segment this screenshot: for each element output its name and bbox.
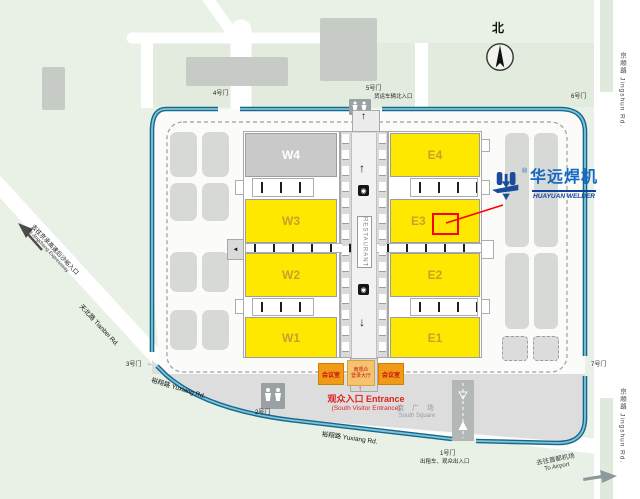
- corridor-stairs: [379, 134, 386, 356]
- gate-5-label: 5号门: [366, 86, 381, 92]
- door-strip: [410, 298, 478, 316]
- hall-w2: W2: [245, 253, 337, 297]
- road-median-bottom: [600, 398, 613, 499]
- hall-w4: W4: [245, 133, 337, 177]
- building-tab: [235, 180, 244, 195]
- connector-arrow-icon: ↑: [361, 112, 366, 122]
- restaurant: RESTAURANT: [357, 216, 372, 268]
- corridor-arrow-down-icon: ↓: [359, 316, 365, 328]
- gate-6-label: 6号门: [571, 94, 586, 100]
- hall-e2: E2: [390, 253, 480, 297]
- building-tab: [235, 299, 244, 314]
- facility-icon: ◉: [358, 185, 369, 196]
- welder-logo-icon: [492, 172, 524, 202]
- gate-1-sublabel: 出租车、观众出入口: [420, 460, 470, 466]
- parking-lot: [170, 252, 197, 292]
- entrance-arrow-icon: ↑: [358, 385, 362, 393]
- gate-7-label: 7号门: [591, 362, 606, 368]
- building-tab: [481, 180, 490, 195]
- hall-e4: E4: [390, 133, 480, 177]
- road-median-top: [600, 0, 613, 92]
- strip-west-road: [141, 33, 153, 108]
- huayuan-welder-logo: ® 华远焊机 HUAYUAN WELDER: [492, 168, 604, 204]
- west-gate-lobby: ◄: [227, 239, 244, 260]
- road-jingshun-top: 京顺路 Jingshun Rd.: [618, 52, 625, 182]
- conference-room-right: 会议室: [378, 363, 404, 385]
- parking-lot: [202, 252, 229, 292]
- parking-lot: [170, 310, 197, 350]
- exhibition-center-map: W4 W3 W2 W1 E4 E3 E2 E1 ◄ ↑ ↑ ↓ ◉ ◉ REST…: [0, 0, 640, 499]
- reserved-lot: [502, 336, 528, 361]
- service-building: [186, 57, 288, 86]
- hall-e1: E1: [390, 317, 480, 358]
- parking-lot: [170, 183, 197, 221]
- strip-gap-road: [415, 43, 428, 107]
- north-connector: [352, 110, 380, 132]
- east-gate-lobby: [481, 240, 494, 259]
- north-label: 北: [492, 22, 504, 34]
- facility-icon: ◉: [358, 284, 369, 295]
- conference-room-left: 会议室: [318, 363, 344, 385]
- gate-3-label: 3号门: [126, 362, 141, 368]
- door-strip: [252, 298, 314, 316]
- compass-icon: [487, 44, 513, 70]
- parking-lot: [202, 310, 229, 350]
- hall-w3: W3: [245, 199, 337, 243]
- gate-4-label: 4号门: [213, 91, 228, 97]
- service-building: [42, 67, 65, 110]
- road-jingshun-bottom: 京顺路 Jingshun Rd.: [618, 388, 625, 498]
- west-arrow-icon: ◄: [233, 247, 239, 253]
- registered-mark: ®: [522, 168, 527, 175]
- south-square-label: 南 广 场 South Square: [377, 405, 457, 419]
- logo-cn: 华远焊机: [530, 170, 598, 186]
- parking-lot: [202, 132, 229, 177]
- registration-hall: 南观众 登录大厅: [347, 360, 375, 386]
- corridor-stairs: [342, 134, 349, 356]
- restaurant-label: RESTAURANT: [362, 217, 368, 267]
- door-strip: [410, 178, 478, 197]
- parking-lot: [202, 183, 229, 221]
- visitor-entrance-title: 观众入口 Entrance: [296, 395, 436, 404]
- parking-lot: [170, 132, 197, 177]
- gate-3-arrow-icon: ←: [147, 361, 153, 367]
- logo-en: HUAYUAN WELDER: [532, 190, 596, 200]
- corridor-arrow-up-icon: ↑: [359, 162, 365, 174]
- building-tab: [481, 139, 490, 152]
- gate2-crossing-icon: [261, 383, 285, 409]
- gate-5-sublabel: 货运车辆北入口: [374, 95, 413, 101]
- parking-lot: [505, 253, 529, 329]
- gate-2-label: 2号门: [255, 410, 270, 416]
- building-tab: [481, 299, 490, 314]
- door-strip: [252, 178, 314, 197]
- service-building: [320, 18, 377, 81]
- reserved-lot: [533, 336, 559, 361]
- gate-1-label: 1号门: [440, 451, 455, 457]
- hall-w1: W1: [245, 317, 337, 358]
- parking-lot: [534, 253, 558, 329]
- hall-e3: E3: [390, 199, 480, 243]
